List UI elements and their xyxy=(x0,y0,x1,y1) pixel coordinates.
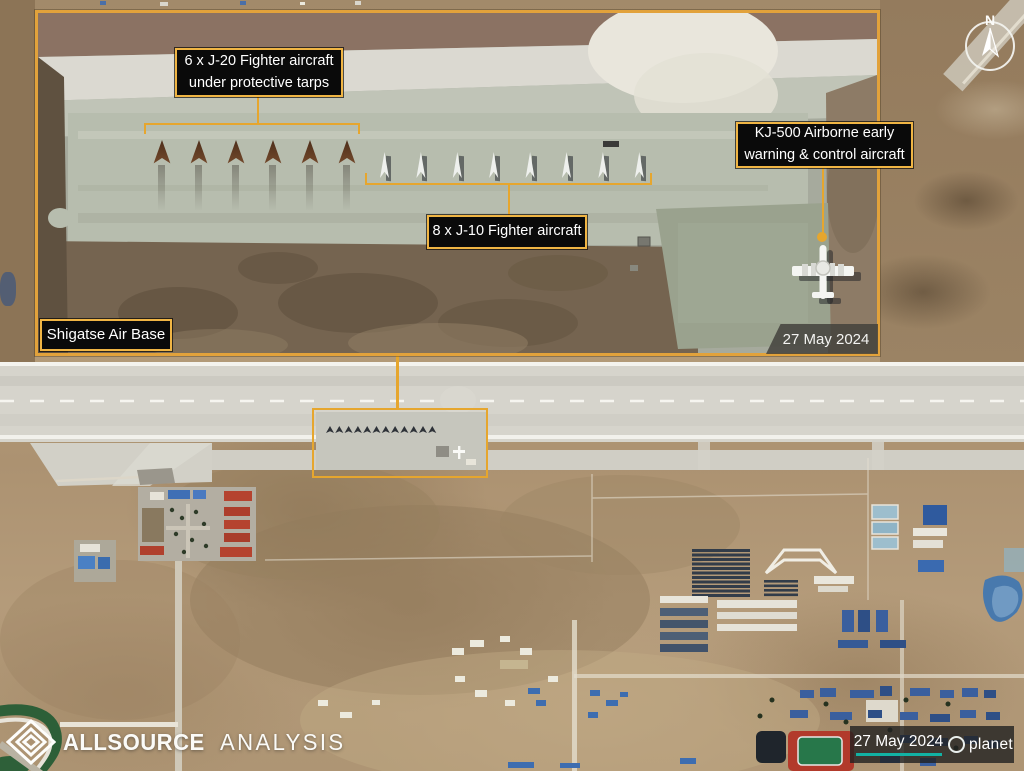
inset-date-stamp: 27 May 2024 xyxy=(766,324,878,354)
j10-aircraft xyxy=(523,152,538,178)
water-ponds xyxy=(872,505,1024,622)
j10-label-text: 8 x J-10 Fighter aircraft xyxy=(432,221,581,243)
base-name-text: Shigatse Air Base xyxy=(47,324,165,347)
j20-aircraft xyxy=(188,140,210,170)
planet-text: planet xyxy=(969,736,1013,754)
j10-bracket xyxy=(365,183,652,185)
brand-text-light: ANALYSIS xyxy=(220,729,346,756)
j20-label: 6 x J-20 Fighter aircraft under protecti… xyxy=(175,48,343,97)
j10-bracket-tick-right xyxy=(650,173,652,185)
base-name-label: Shigatse Air Base xyxy=(40,319,172,351)
j20-shadow xyxy=(306,165,313,211)
solar-farm xyxy=(692,549,798,597)
allsource-diamond-logo xyxy=(6,719,56,765)
planet-ring-icon xyxy=(948,736,965,753)
j10-aircraft xyxy=(486,152,501,178)
footer-date-cell: 27 May 2024 xyxy=(850,726,947,763)
warehouse-rows xyxy=(660,596,797,652)
footer-stamp-bar: 27 May 2024 planet xyxy=(850,726,1014,763)
zoom-inset-panel: 6 x J-20 Fighter aircraft under protecti… xyxy=(35,10,880,356)
allsource-brand: ALLSOURCE ANALYSIS xyxy=(6,718,350,766)
north-arrow-icon: N xyxy=(956,8,1024,76)
apron-highlight-rect xyxy=(312,408,488,478)
stadium xyxy=(756,731,854,771)
j20-shadow xyxy=(343,165,350,211)
j20-bracket-tick-left xyxy=(144,123,146,134)
j20-aircraft xyxy=(299,140,321,170)
planet-logo: planet xyxy=(947,726,1014,763)
j20-label-text: 6 x J-20 Fighter aircraft under protecti… xyxy=(183,51,335,95)
j10-leader-line xyxy=(508,185,510,216)
j10-aircraft xyxy=(377,152,392,178)
j10-aircraft xyxy=(559,152,574,178)
kj500-leader-dot xyxy=(817,232,827,242)
j20-aircraft xyxy=(225,140,247,170)
j20-bracket xyxy=(144,123,360,125)
j20-shadow xyxy=(232,165,239,211)
j10-label: 8 x J-10 Fighter aircraft xyxy=(427,215,587,249)
j20-aircraft xyxy=(336,140,358,170)
j10-bracket-tick-left xyxy=(365,173,367,185)
j20-shadow xyxy=(158,165,165,211)
brand-text-bold: ALLSOURCE xyxy=(63,729,205,756)
runway xyxy=(0,362,1024,442)
inset-date-text: 27 May 2024 xyxy=(775,331,870,348)
footer-date-text: 27 May 2024 xyxy=(854,733,944,751)
top-edge-specks xyxy=(100,1,361,6)
inset-connector-line xyxy=(396,356,399,409)
j20-aircraft xyxy=(151,140,173,170)
annotated-satellite-scene: 6 x J-20 Fighter aircraft under protecti… xyxy=(0,0,1024,771)
kj500-label-text: KJ-500 Airborne early warning & control … xyxy=(744,123,905,167)
j20-bracket-tick-right xyxy=(358,123,360,134)
j10-aircraft xyxy=(595,152,610,178)
kj500-label: KJ-500 Airborne early warning & control … xyxy=(736,122,913,168)
taxiway xyxy=(30,440,1024,486)
kj500-leader-line xyxy=(822,168,824,234)
j10-aircraft xyxy=(450,152,465,178)
small-compound xyxy=(74,540,116,582)
teal-underline xyxy=(856,753,942,756)
j20-aircraft xyxy=(262,140,284,170)
north-label: N xyxy=(985,12,995,28)
j20-shadow xyxy=(269,165,276,211)
j20-shadow xyxy=(195,165,202,211)
j20-leader-line xyxy=(257,97,259,124)
j10-aircraft xyxy=(632,152,647,178)
j10-aircraft xyxy=(413,152,428,178)
